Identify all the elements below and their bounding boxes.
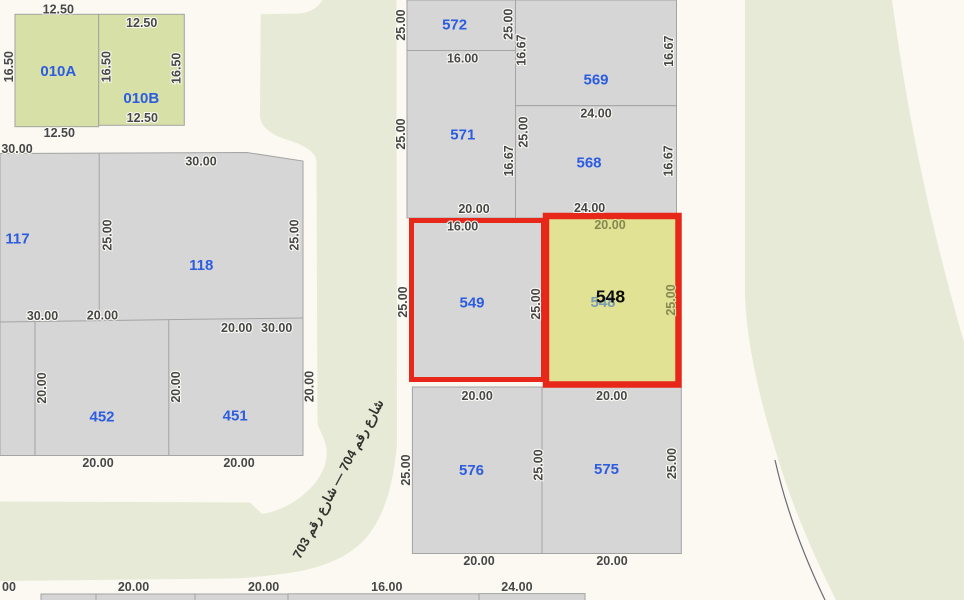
svg-text:20.00: 20.00 <box>458 202 489 216</box>
svg-text:25.00: 25.00 <box>664 284 678 315</box>
svg-text:12.50: 12.50 <box>127 111 158 125</box>
svg-text:548: 548 <box>596 286 625 306</box>
svg-text:20.00: 20.00 <box>594 218 625 232</box>
svg-text:30.00: 30.00 <box>27 309 58 323</box>
svg-text:117: 117 <box>5 231 29 248</box>
svg-text:12.50: 12.50 <box>44 126 75 140</box>
svg-text:24.00: 24.00 <box>580 107 611 121</box>
svg-text:25.00: 25.00 <box>394 118 408 149</box>
svg-text:575: 575 <box>594 461 619 478</box>
svg-text:25.00: 25.00 <box>288 219 302 250</box>
svg-text:16.67: 16.67 <box>514 34 528 65</box>
svg-text:20.00: 20.00 <box>221 321 252 335</box>
svg-text:25.00: 25.00 <box>394 9 408 40</box>
svg-text:12.50: 12.50 <box>126 16 157 30</box>
svg-text:20.00: 20.00 <box>596 389 627 403</box>
svg-text:25.00: 25.00 <box>101 219 115 250</box>
svg-text:16.50: 16.50 <box>2 51 16 82</box>
svg-text:16.50: 16.50 <box>170 53 184 84</box>
svg-text:24.00: 24.00 <box>574 201 605 215</box>
svg-text:010A: 010A <box>40 63 76 80</box>
svg-text:16.00: 16.00 <box>371 580 402 594</box>
svg-text:25.00: 25.00 <box>396 286 410 317</box>
svg-text:00: 00 <box>2 580 16 594</box>
svg-text:12.50: 12.50 <box>43 3 74 17</box>
svg-text:16.67: 16.67 <box>662 36 676 67</box>
svg-text:25.00: 25.00 <box>665 448 679 479</box>
svg-text:549: 549 <box>459 295 484 312</box>
svg-text:20.00: 20.00 <box>303 371 317 402</box>
svg-text:20.00: 20.00 <box>169 371 183 402</box>
svg-text:451: 451 <box>223 408 248 425</box>
svg-text:20.00: 20.00 <box>596 554 627 568</box>
svg-text:16.50: 16.50 <box>100 51 114 82</box>
svg-text:25.00: 25.00 <box>516 116 530 147</box>
svg-text:16.00: 16.00 <box>447 220 478 234</box>
svg-text:572: 572 <box>442 17 467 34</box>
svg-text:30.00: 30.00 <box>185 155 216 169</box>
svg-text:568: 568 <box>576 155 601 172</box>
svg-text:25.00: 25.00 <box>529 288 543 319</box>
svg-text:20.00: 20.00 <box>463 554 494 568</box>
svg-text:010B: 010B <box>123 90 159 107</box>
svg-text:20.00: 20.00 <box>35 372 49 403</box>
svg-text:571: 571 <box>450 127 475 144</box>
svg-text:20.00: 20.00 <box>87 309 118 323</box>
svg-text:452: 452 <box>89 409 114 426</box>
svg-text:20.00: 20.00 <box>248 580 279 594</box>
svg-text:20.00: 20.00 <box>82 456 113 470</box>
svg-text:16.00: 16.00 <box>447 52 478 66</box>
svg-text:24.00: 24.00 <box>501 580 532 594</box>
svg-text:20.00: 20.00 <box>223 456 254 470</box>
svg-text:576: 576 <box>459 462 484 479</box>
svg-text:25.00: 25.00 <box>399 454 413 485</box>
svg-text:20.00: 20.00 <box>118 580 149 594</box>
svg-text:569: 569 <box>583 72 608 89</box>
svg-text:118: 118 <box>189 257 213 274</box>
svg-text:25.00: 25.00 <box>532 449 546 480</box>
svg-text:30.00: 30.00 <box>1 142 32 156</box>
svg-text:16.67: 16.67 <box>662 145 676 176</box>
svg-text:20.00: 20.00 <box>462 389 493 403</box>
svg-text:30.00: 30.00 <box>261 321 292 335</box>
svg-text:16.67: 16.67 <box>502 145 516 176</box>
svg-text:25.00: 25.00 <box>501 9 515 40</box>
